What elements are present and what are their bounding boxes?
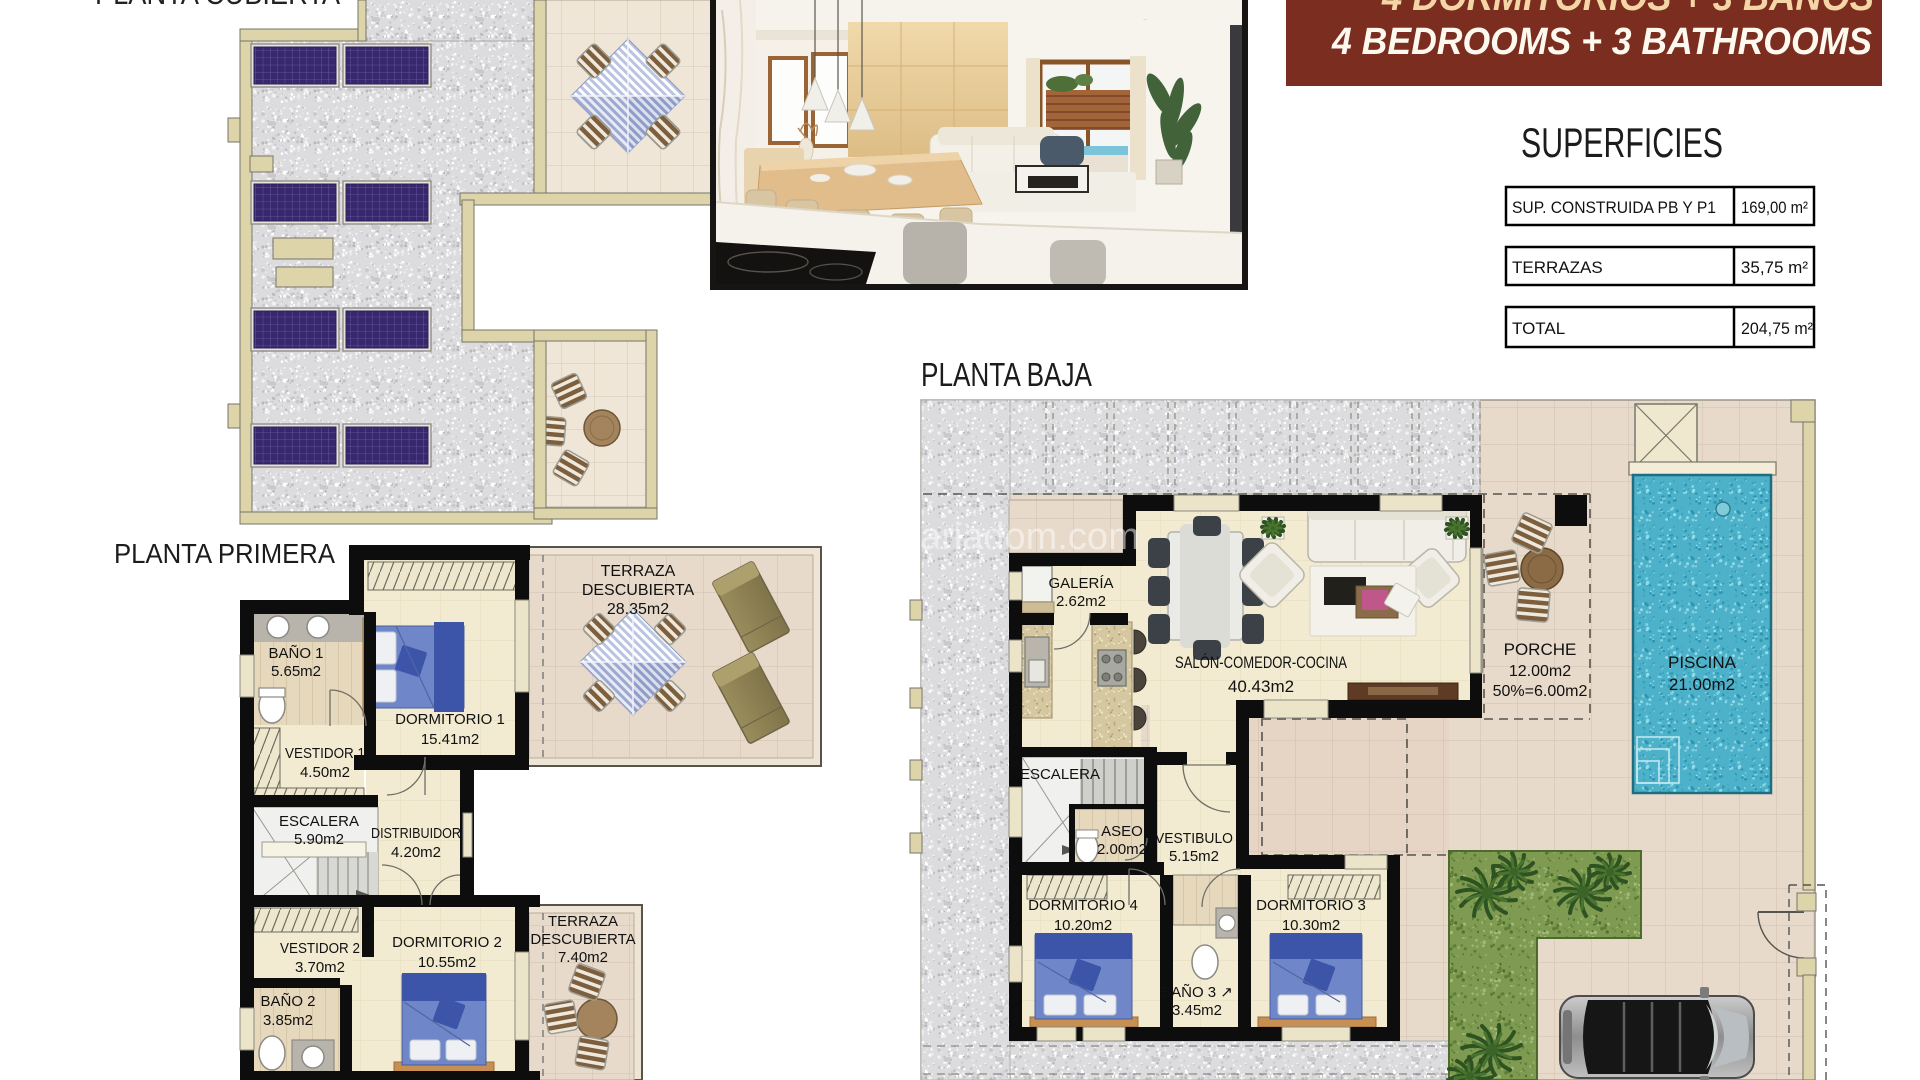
svg-text:SALÓN-COMEDOR-COCINA: SALÓN-COMEDOR-COCINA — [1175, 653, 1347, 672]
svg-text:ESCALERA: ESCALERA — [1020, 766, 1100, 783]
svg-text:DORMITORIO 1: DORMITORIO 1 — [395, 711, 505, 728]
svg-text:DESCUBIERTA: DESCUBIERTA — [530, 931, 635, 948]
svg-text:VESTIDOR 2: VESTIDOR 2 — [280, 940, 360, 957]
svg-text:50%=6.00m2: 50%=6.00m2 — [1493, 683, 1588, 700]
svg-text:15.41m2: 15.41m2 — [421, 731, 479, 748]
svg-text:4 BEDROOMS + 3 BATHROOMS: 4 BEDROOMS + 3 BATHROOMS — [1331, 21, 1872, 63]
svg-text:DISTRIBUIDOR: DISTRIBUIDOR — [371, 825, 461, 842]
svg-text:PISCINA: PISCINA — [1668, 653, 1737, 672]
svg-text:7.40m2: 7.40m2 — [558, 949, 608, 966]
svg-text:PLANTA CUBIERTA: PLANTA CUBIERTA — [95, 0, 340, 11]
svg-text:GALERÍA: GALERÍA — [1048, 575, 1113, 592]
svg-text:4.20m2: 4.20m2 — [391, 844, 441, 861]
svg-text:4.50m2: 4.50m2 — [300, 764, 350, 781]
svg-text:5.90m2: 5.90m2 — [294, 831, 344, 848]
svg-text:PLANTA BAJA: PLANTA BAJA — [921, 356, 1092, 393]
svg-text:BAÑO 1: BAÑO 1 — [268, 645, 323, 662]
svg-text:TOTAL: TOTAL — [1512, 319, 1565, 338]
svg-text:BAÑO 2: BAÑO 2 — [260, 993, 315, 1010]
svg-text:5.65m2: 5.65m2 — [271, 663, 321, 680]
svg-text:5.15m2: 5.15m2 — [1169, 848, 1219, 865]
svg-text:BAÑO 3 ↗: BAÑO 3 ↗ — [1161, 984, 1233, 1001]
svg-text:TERRAZA: TERRAZA — [601, 563, 676, 580]
svg-text:40.43m2: 40.43m2 — [1228, 677, 1294, 696]
svg-text:28.35m2: 28.35m2 — [607, 601, 669, 618]
svg-text:4 DORMITORIOS + 3 BAÑOS: 4 DORMITORIOS + 3 BAÑOS — [1381, 0, 1874, 19]
svg-text:ESCALERA: ESCALERA — [279, 813, 359, 830]
svg-text:204,75 m²: 204,75 m² — [1741, 319, 1813, 338]
svg-text:DESCUBIERTA: DESCUBIERTA — [582, 582, 695, 599]
svg-text:3.45m2: 3.45m2 — [1172, 1002, 1222, 1019]
svg-text:169,00 m²: 169,00 m² — [1741, 198, 1808, 217]
svg-text:DORMITORIO 2: DORMITORIO 2 — [392, 934, 502, 951]
svg-text:10.20m2: 10.20m2 — [1054, 917, 1112, 934]
svg-text:SUP. CONSTRUIDA PB Y P1: SUP. CONSTRUIDA PB Y P1 — [1512, 198, 1716, 217]
svg-text:10.55m2: 10.55m2 — [418, 954, 476, 971]
svg-text:TERRAZAS: TERRAZAS — [1512, 258, 1603, 277]
svg-text:3.85m2: 3.85m2 — [263, 1012, 313, 1029]
svg-text:2.00m2: 2.00m2 — [1097, 841, 1147, 858]
svg-text:TERRAZA: TERRAZA — [548, 913, 618, 930]
svg-text:ASEO: ASEO — [1101, 823, 1143, 840]
svg-text:VESTIBULO: VESTIBULO — [1155, 830, 1233, 847]
svg-text:DORMITORIO 3: DORMITORIO 3 — [1256, 897, 1366, 914]
svg-text:PLANTA PRIMERA: PLANTA PRIMERA — [114, 538, 335, 569]
svg-text:2.62m2: 2.62m2 — [1056, 593, 1106, 610]
svg-text:DORMITORIO 4: DORMITORIO 4 — [1028, 897, 1138, 914]
svg-text:PORCHE: PORCHE — [1504, 640, 1577, 659]
svg-text:12.00m2: 12.00m2 — [1509, 663, 1571, 680]
svg-text:mariadom.com: mariadom.com — [888, 516, 1139, 558]
svg-text:VESTIDOR 1: VESTIDOR 1 — [285, 745, 365, 762]
svg-text:35,75 m²: 35,75 m² — [1741, 258, 1808, 277]
svg-text:3.70m2: 3.70m2 — [295, 959, 345, 976]
svg-text:10.30m2: 10.30m2 — [1282, 917, 1340, 934]
svg-text:SUPERFICIES: SUPERFICIES — [1521, 119, 1723, 166]
svg-text:21.00m2: 21.00m2 — [1669, 675, 1735, 694]
